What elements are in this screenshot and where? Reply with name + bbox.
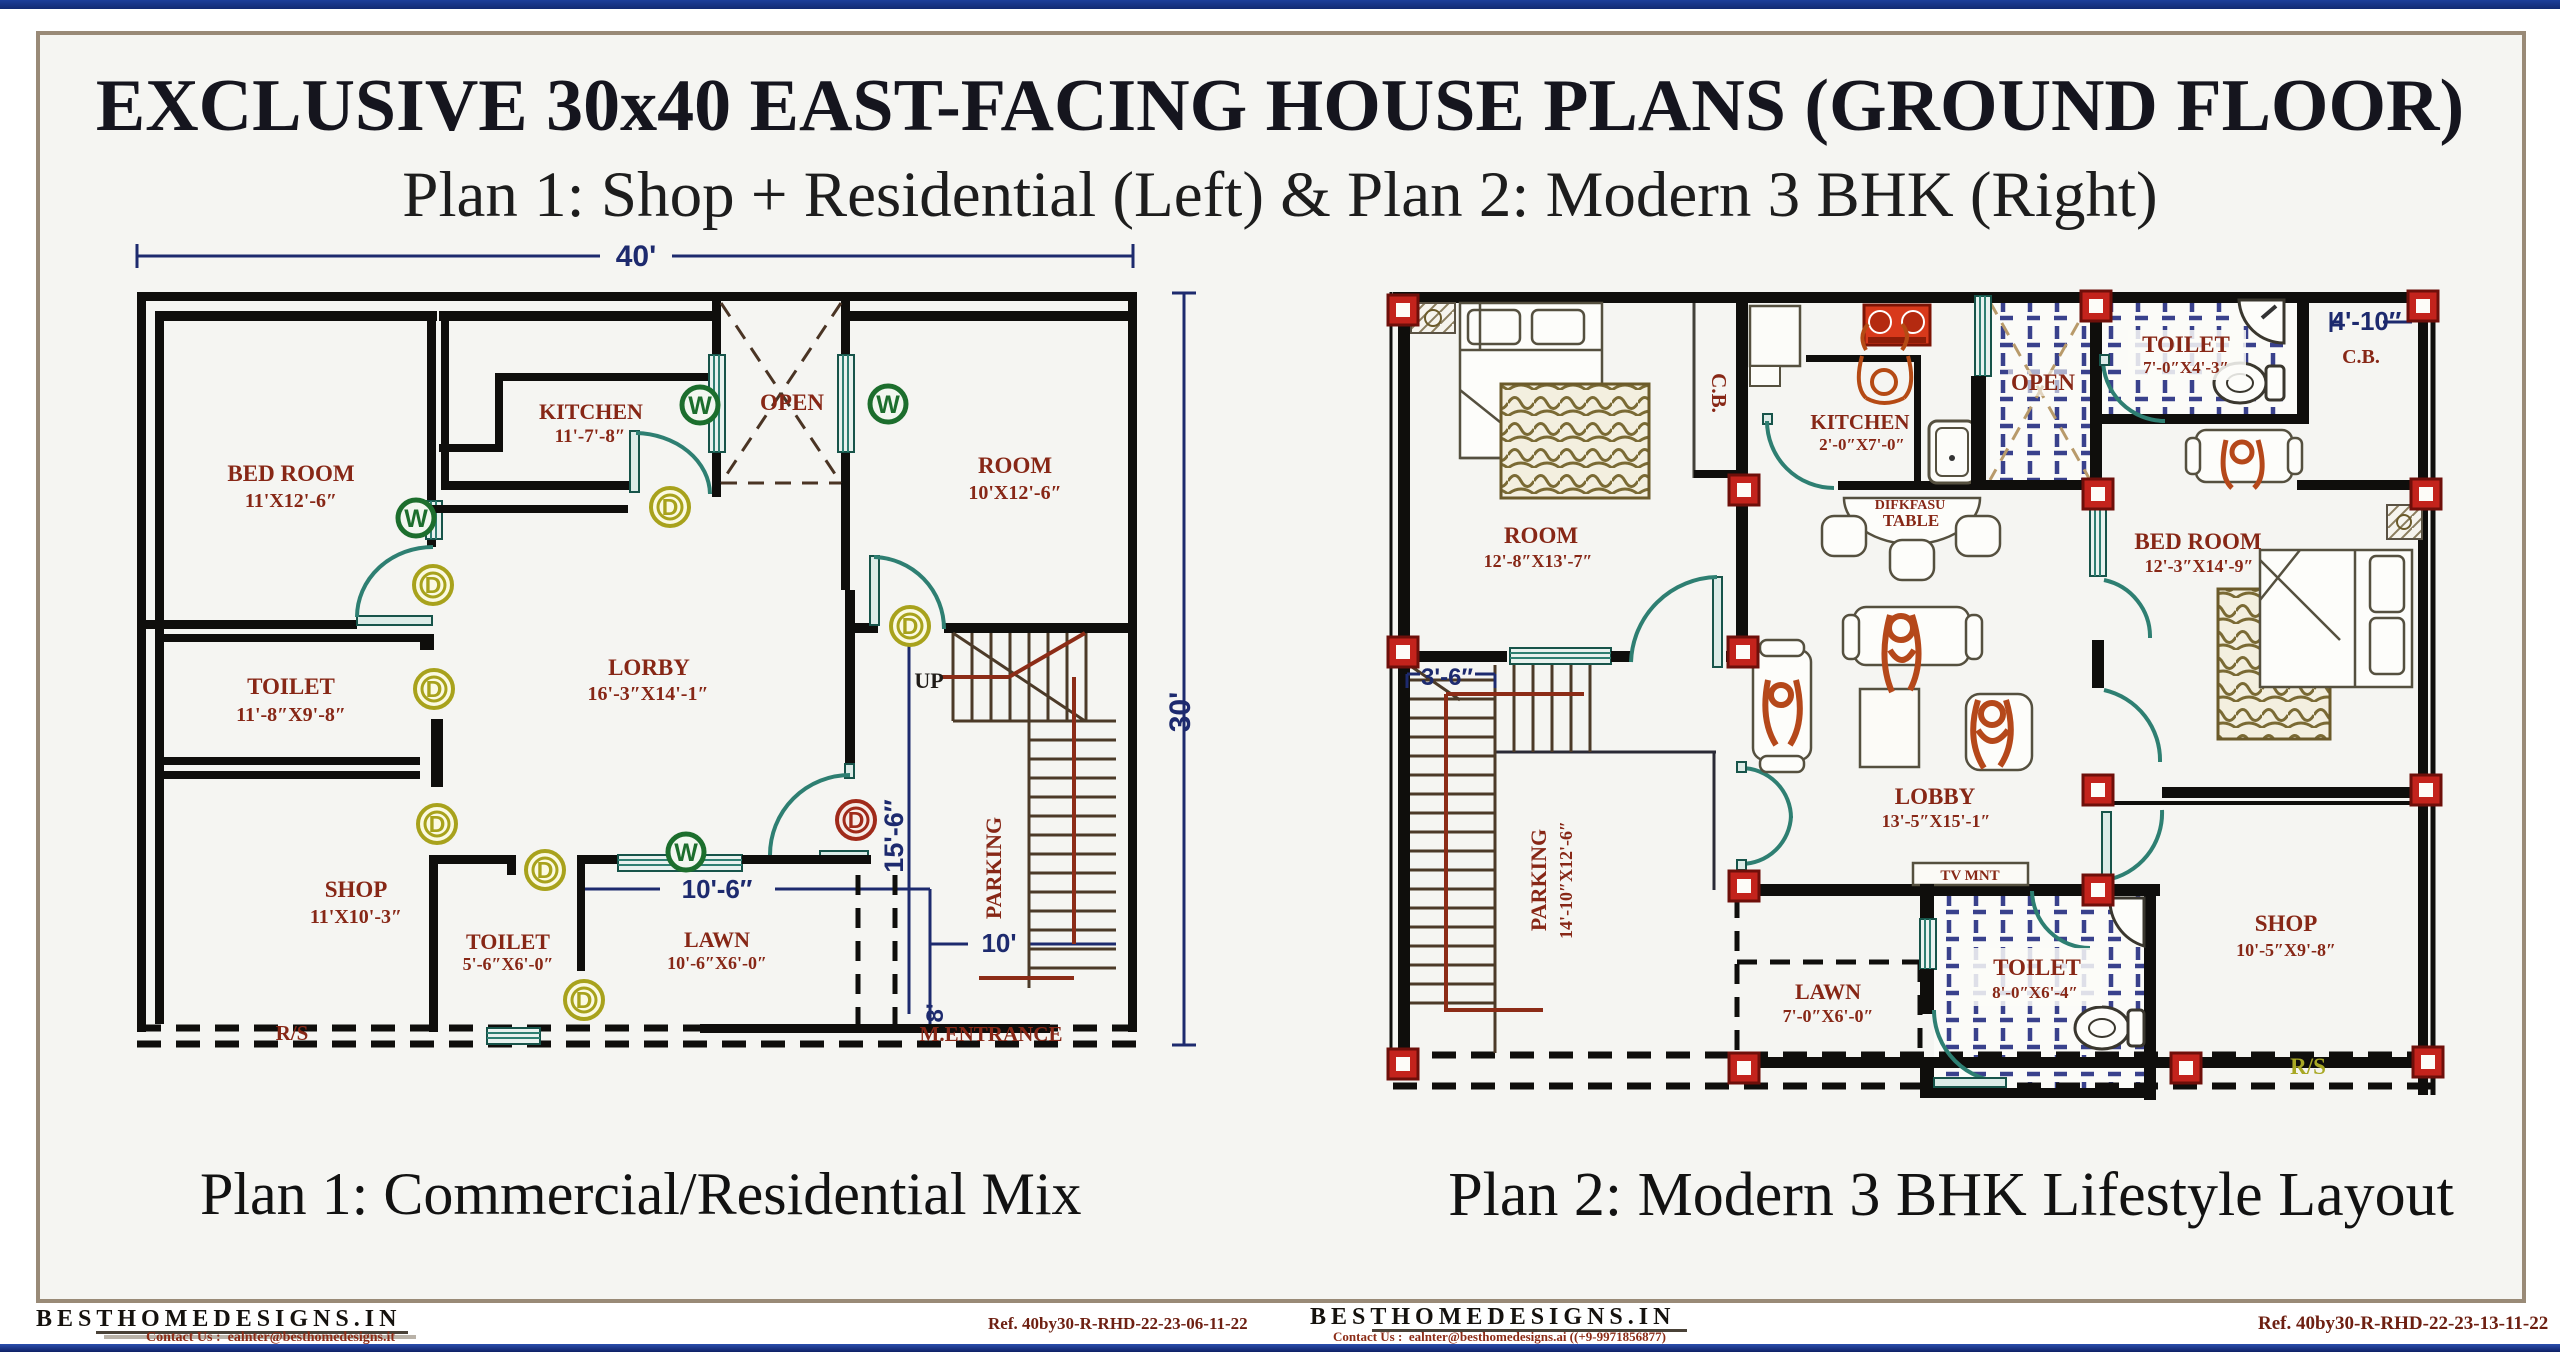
svg-text:4'-10″: 4'-10″: [2331, 306, 2402, 336]
svg-text:ROOM: ROOM: [1504, 523, 1578, 548]
svg-text:LOBBY: LOBBY: [1895, 784, 1976, 809]
svg-text:12'-3″X14'-9″: 12'-3″X14'-9″: [2145, 556, 2254, 576]
svg-text:3'-6″: 3'-6″: [1421, 664, 1473, 691]
svg-text:PARKING: PARKING: [1526, 829, 1551, 931]
svg-text:7'-0″X6'-0″: 7'-0″X6'-0″: [1783, 1006, 1874, 1026]
svg-text:2'-0″X7'-0″: 2'-0″X7'-0″: [1819, 435, 1905, 454]
svg-text:C.B.: C.B.: [1707, 373, 1731, 413]
svg-text:13'-5″X15'-1″: 13'-5″X15'-1″: [1882, 811, 1991, 831]
svg-text:OPEN: OPEN: [2011, 370, 2075, 395]
svg-text:TOILET: TOILET: [2142, 332, 2230, 357]
svg-text:TABLE: TABLE: [1883, 511, 1939, 530]
svg-text:KITCHEN: KITCHEN: [1810, 410, 1909, 434]
svg-text:TOILET: TOILET: [1993, 955, 2081, 980]
svg-text:10'-5″X9'-8″: 10'-5″X9'-8″: [2236, 940, 2336, 960]
svg-text:BED ROOM: BED ROOM: [2134, 529, 2261, 554]
svg-text:7'-0″X4'-3″: 7'-0″X4'-3″: [2143, 358, 2229, 377]
svg-text:SHOP: SHOP: [2255, 911, 2318, 936]
svg-text:C.B.: C.B.: [2342, 346, 2380, 368]
svg-text:12'-8″X13'-7″: 12'-8″X13'-7″: [1484, 551, 1593, 571]
svg-text:LAWN: LAWN: [1795, 979, 1861, 1004]
svg-text:TV MNT: TV MNT: [1940, 868, 1999, 884]
svg-text:14'-10″X12'-6″: 14'-10″X12'-6″: [1556, 821, 1576, 939]
svg-text:8'-0″X6'-4″: 8'-0″X6'-4″: [1992, 983, 2078, 1002]
svg-text:R/S: R/S: [2290, 1054, 2326, 1079]
